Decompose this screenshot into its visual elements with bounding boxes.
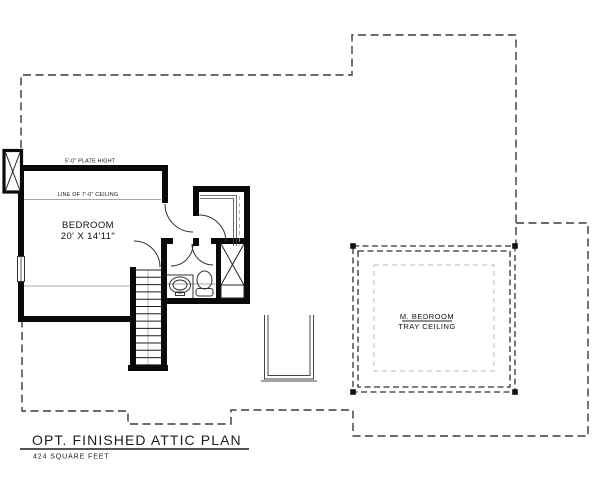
plan-title: OPT. FINISHED ATTIC PLAN [32, 432, 242, 448]
ceiling-line-label: LINE OF 7'-0" CEILING [58, 192, 118, 198]
corner-post [512, 389, 518, 395]
tray-ceiling-label: TRAY CEILING [398, 322, 455, 331]
wall-south [18, 316, 134, 322]
bath-wall-south [161, 298, 250, 304]
stairwell-wall-bottom [128, 365, 168, 371]
window-west [18, 257, 25, 282]
bedroom-dims-label: 20' X 14'11" [61, 231, 115, 242]
chase-wall-left [216, 244, 221, 304]
stairwell-wall-left [130, 267, 136, 371]
corner-post [512, 243, 518, 249]
area-label: 424 SQUARE FEET [33, 454, 110, 461]
wall-north [18, 165, 168, 171]
corner-post [350, 389, 356, 395]
bath-wall-north-left [161, 238, 173, 244]
closet-wall-top [193, 186, 250, 192]
closet-bath-wall-right [244, 186, 250, 304]
attic-plan-drawing: 5'-0" PLATE HIGHT LINE OF 7'-0" CEILING … [0, 0, 600, 480]
corner-post [350, 243, 356, 249]
chimney [4, 151, 22, 193]
floor-plan-sheet: 5'-0" PLATE HIGHT LINE OF 7'-0" CEILING … [0, 0, 600, 480]
bedroom-name-label: BEDROOM [62, 220, 114, 231]
master-bedroom-label: M. BEDROOM [400, 312, 454, 321]
stairwell-wall-right [161, 238, 167, 371]
closet-wall-left [193, 186, 199, 216]
wall-northeast-corner [162, 165, 168, 203]
bath-wall-north-right [211, 238, 244, 244]
plate-height-label: 5'-0" PLATE HIGHT [65, 159, 116, 165]
closet-wall-stub [193, 238, 199, 246]
